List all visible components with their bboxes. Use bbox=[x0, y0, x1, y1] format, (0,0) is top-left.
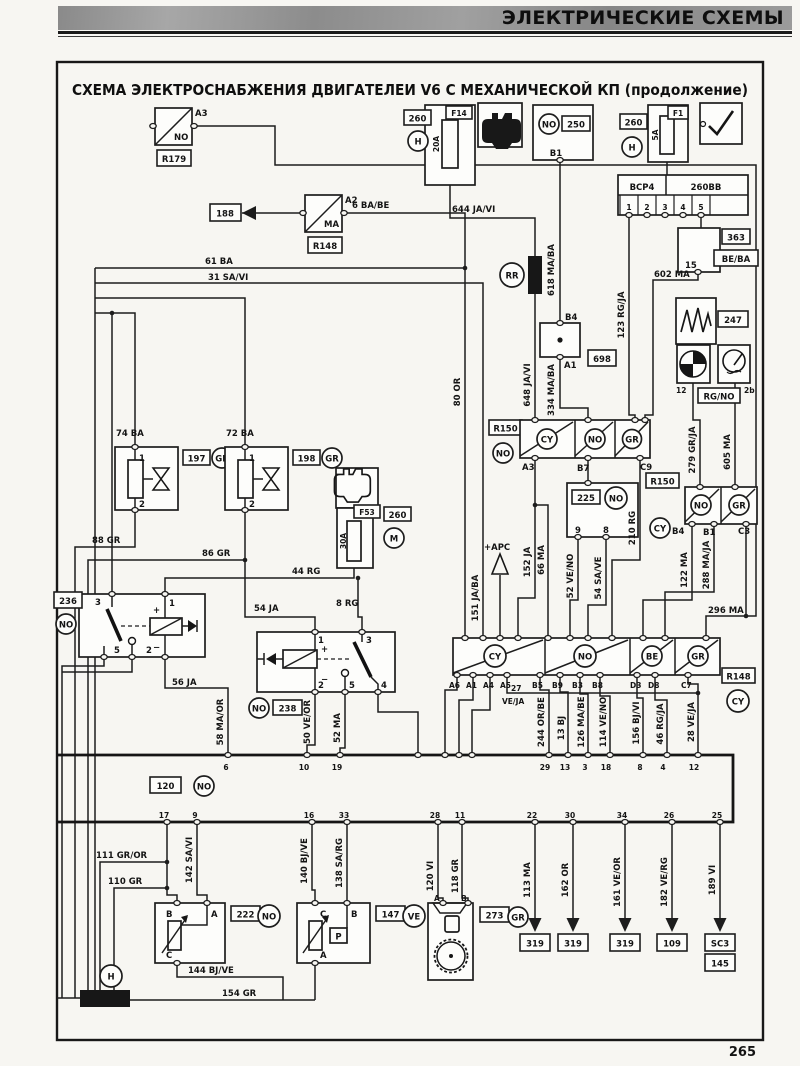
wire-label: 50 VE/OR bbox=[303, 700, 313, 745]
pin-label: 1 bbox=[139, 454, 145, 464]
wire-label: 605 MA bbox=[723, 434, 733, 470]
code-circle: VE bbox=[408, 913, 421, 923]
pin-label: D3 bbox=[630, 681, 641, 690]
pin-label: 34 bbox=[617, 811, 627, 820]
diagram-title: СХЕМА ЭЛЕКТРОСНАБЖЕНИЯ ДВИГАТЕЛЕИ V6 С М… bbox=[72, 80, 748, 99]
pin-label: + bbox=[321, 645, 328, 655]
dest-box: 319 bbox=[564, 940, 582, 950]
code-circle: NO bbox=[542, 121, 556, 131]
wire-label: 123 RG/JA bbox=[617, 291, 627, 338]
connector-r148-top: MA A2 R148 188 6 BA/BE bbox=[210, 195, 390, 253]
pin-label: 2b bbox=[744, 386, 755, 395]
pin-label: 17 bbox=[159, 811, 169, 820]
pin-label: 12 bbox=[689, 763, 699, 772]
ref-box-label: R150 bbox=[493, 425, 517, 435]
ref-box-label: 238 bbox=[279, 705, 297, 715]
wire-label: 86 GR bbox=[202, 549, 231, 559]
pin-label: 1 bbox=[626, 203, 631, 212]
ref-box-label: 197 bbox=[188, 455, 206, 465]
code-circle: H bbox=[107, 973, 114, 983]
sensor-273: A B 273 GR bbox=[428, 894, 528, 980]
wire-label: 154 GR bbox=[222, 989, 257, 999]
code-circle: NO bbox=[59, 621, 73, 631]
wire-label: 31 SA/VI bbox=[208, 273, 248, 283]
ref-box-label: R148 bbox=[313, 242, 337, 252]
relay-238: 1 + − 3 2 5 4 NO 238 bbox=[249, 632, 395, 718]
code-circle: CY bbox=[654, 525, 667, 535]
code-circle: NO bbox=[262, 913, 276, 923]
code-circle: CY bbox=[541, 436, 554, 446]
wire-label: 74 BA bbox=[116, 429, 144, 439]
wire-label: 6 BA/BE bbox=[352, 201, 390, 211]
pin-label: A5 bbox=[500, 681, 511, 690]
pin-label: A1 bbox=[466, 681, 477, 690]
pin-label: A1 bbox=[564, 361, 577, 371]
pin-label: 25 bbox=[712, 811, 722, 820]
wire-label: 52 VE/NO bbox=[566, 554, 576, 599]
engine-icon-small bbox=[334, 468, 378, 508]
wiring-diagram: СХЕМА ЭЛЕКТРОСНАБЖЕНИЯ ДВИГАТЕЛЕИ V6 С М… bbox=[0, 0, 800, 1066]
fuse-f14: F14 20A 260 H bbox=[404, 105, 475, 185]
wire-label: 152 JA bbox=[523, 546, 533, 577]
wire-label: 46 RG/JA bbox=[656, 703, 666, 745]
code-circle: NO bbox=[578, 653, 592, 663]
dest-box: 145 bbox=[711, 960, 729, 970]
resistor-rr: RR bbox=[500, 256, 542, 294]
wire-label: 151 JA/BA bbox=[471, 574, 481, 621]
code-circle: GR bbox=[691, 653, 705, 663]
ref-box-label: 247 bbox=[724, 316, 742, 326]
fuse-f53: F53 30A 260 M bbox=[337, 505, 411, 568]
pin-label: C7 bbox=[681, 681, 692, 690]
pin-bumps bbox=[101, 124, 749, 966]
pin-label: 3 bbox=[95, 598, 101, 608]
pin-label: A3 bbox=[522, 463, 535, 473]
fuse-name: F14 bbox=[451, 109, 467, 118]
connector-code: NO bbox=[174, 133, 188, 143]
code-circle: CY bbox=[732, 698, 745, 708]
pin-label: A bbox=[211, 910, 218, 920]
pin-label: 4 bbox=[381, 681, 387, 691]
wire-label: 648 JA/VI bbox=[523, 363, 533, 406]
wire-label: 120 VI bbox=[426, 861, 436, 891]
pin-label: A4 bbox=[483, 681, 494, 690]
pin-label: D8 bbox=[648, 681, 659, 690]
wire-label: 189 VI bbox=[708, 865, 718, 895]
wire-label: 56 JA bbox=[172, 678, 197, 688]
ref-box-label: 222 bbox=[237, 911, 255, 921]
wire-label: 88 GR bbox=[92, 536, 121, 546]
connector-code: MA bbox=[324, 220, 339, 230]
ref-box-label: 236 bbox=[59, 597, 77, 607]
pin-label: 4 bbox=[680, 203, 685, 212]
pin-label: 9 bbox=[192, 811, 197, 820]
injector-197: 1 2 197 GR bbox=[115, 447, 232, 510]
wire-label: 8 RG bbox=[336, 599, 358, 609]
component-15-363: 15 363 BE/BA bbox=[678, 228, 758, 272]
ref-box-label: 250 bbox=[567, 121, 585, 131]
code-circle: NO bbox=[588, 436, 602, 446]
wires-layer bbox=[57, 105, 756, 1000]
ref-box-label: 198 bbox=[298, 455, 316, 465]
component-698: B4 A1 698 bbox=[540, 313, 616, 371]
wire-label: 54 SA/VE bbox=[594, 556, 604, 599]
waveform-icon-247: 247 bbox=[676, 298, 748, 344]
wire-label: 61 BA bbox=[205, 257, 233, 267]
code-circle: CY bbox=[489, 653, 502, 663]
wire-label: 156 BJ/VI bbox=[632, 701, 642, 744]
pin-label: 26 bbox=[664, 811, 674, 820]
code-circle: NO bbox=[197, 783, 211, 793]
ref-box-label: 120 bbox=[157, 782, 175, 792]
dest-box: 319 bbox=[526, 940, 544, 950]
pin-label: 8 bbox=[637, 763, 642, 772]
pin-label: 16 bbox=[304, 811, 314, 820]
connector-250: NO 250 B1 bbox=[533, 105, 593, 160]
wire-label: 138 SA/RG bbox=[335, 838, 345, 888]
connector-r179: NO A3 R179 bbox=[155, 108, 208, 166]
code-circle: NO bbox=[609, 495, 623, 505]
wire-label: 126 MA/BE bbox=[577, 696, 587, 747]
pin-label: 33 bbox=[339, 811, 349, 820]
pin-label: C bbox=[166, 951, 172, 961]
pin-label: B7 bbox=[577, 464, 589, 474]
strip-name: BCP4 bbox=[630, 183, 655, 193]
pin-label: 5 bbox=[114, 646, 120, 656]
wire-label: 161 VE/OR bbox=[613, 857, 623, 907]
pin-label: 2 bbox=[249, 500, 255, 510]
wire-label: 113 MA bbox=[523, 862, 533, 898]
ref-box-label: RG/NO bbox=[704, 393, 735, 403]
wire-label: 140 BJ/VE bbox=[300, 838, 310, 884]
xcircle-icon bbox=[677, 345, 710, 383]
fuse-f1: F1 5A 260 H bbox=[620, 105, 688, 162]
pin-label: 5 bbox=[698, 203, 703, 212]
code-circle: H bbox=[628, 144, 635, 154]
strip-name: 260BB bbox=[691, 183, 722, 193]
ref-box-label: 225 bbox=[577, 494, 595, 504]
connector-right-nogr: CY NO GR B4 B1 C3 bbox=[650, 487, 757, 538]
engine-icon bbox=[478, 103, 522, 149]
pin-label: 19 bbox=[332, 763, 342, 772]
pin-label: 5 bbox=[349, 681, 355, 691]
wire-label: 118 GR bbox=[451, 858, 461, 893]
wire-label: 58 MA/OR bbox=[216, 698, 226, 745]
wire-label: 80 OR bbox=[453, 377, 463, 406]
pin-label: B8 bbox=[592, 681, 603, 690]
wire-label: 72 BA bbox=[226, 429, 254, 439]
wire-label: 279 GR/JA bbox=[688, 426, 698, 473]
ref-box-label: R148 bbox=[726, 673, 750, 683]
pin-label: 3 bbox=[366, 636, 372, 646]
wire-label: 296 MA bbox=[708, 606, 744, 616]
pin-label: 2 bbox=[146, 646, 152, 656]
code-circle: RR bbox=[505, 272, 519, 282]
pin-label: A bbox=[434, 894, 440, 903]
connector-r150: R150 NO CY NO GR A3 B7 C9 R150 bbox=[489, 420, 679, 488]
wire-label: 334 MA/BA bbox=[547, 364, 557, 416]
pin-label: 1 bbox=[249, 454, 255, 464]
wire-label: 288 MA/JA bbox=[702, 540, 712, 589]
wire-label: 602 MA bbox=[654, 270, 690, 280]
ref-box-label: 147 bbox=[382, 911, 400, 921]
pin-label: B bbox=[166, 910, 172, 920]
pin-label: − bbox=[153, 643, 160, 653]
wire-label: +APC bbox=[484, 543, 510, 553]
relay-236: 236 NO 3 1 + − 5 2 bbox=[54, 592, 205, 657]
left-arrow-icon bbox=[242, 206, 256, 220]
injector-198: 1 2 198 GR bbox=[225, 447, 342, 510]
wire-label: 54 JA bbox=[254, 604, 279, 614]
pin-label: B3 bbox=[572, 681, 583, 690]
ref-box-label: 260 bbox=[389, 511, 407, 521]
wire-label: 110 GR bbox=[108, 877, 143, 887]
wire-label: 644 JA/VI bbox=[452, 205, 495, 215]
pin-label: 11 bbox=[455, 811, 465, 820]
pin-label: 2 bbox=[139, 500, 145, 510]
pin-label: C bbox=[320, 910, 326, 920]
code-circle: GR bbox=[732, 502, 746, 512]
pressure-symbol: P bbox=[335, 933, 341, 943]
pin-label: 18 bbox=[601, 763, 611, 772]
wire-label: 66 MA bbox=[537, 545, 547, 575]
code-circle: NO bbox=[496, 450, 510, 460]
pin-label: C3 bbox=[738, 527, 750, 537]
sensor-222: B A C 222 NO bbox=[155, 903, 280, 963]
wire-label: 27 bbox=[511, 684, 521, 693]
pin-label: B4 bbox=[672, 527, 684, 537]
pin-label: 30 bbox=[565, 811, 575, 820]
pin-label: B4 bbox=[565, 313, 577, 323]
bus-pin-labels: 6 10 19 29 13 3 18 8 4 12 120 NO 17 9 16… bbox=[150, 763, 722, 820]
wire-label: 111 GR/OR bbox=[96, 851, 148, 861]
wire-label: 144 BJ/VE bbox=[188, 966, 234, 976]
pin-label: C9 bbox=[640, 463, 652, 473]
ref-box-label: 363 bbox=[727, 234, 745, 244]
dest-box: 109 bbox=[663, 940, 681, 950]
ref-box-label: R150 bbox=[650, 478, 674, 488]
code-circle: GR bbox=[511, 914, 525, 924]
pin-label: 2 bbox=[644, 203, 649, 212]
code-circle: GR bbox=[625, 436, 639, 446]
pin-label: A3 bbox=[195, 109, 208, 119]
pin-label: 3 bbox=[662, 203, 667, 212]
pin-label: 28 bbox=[430, 811, 440, 820]
pin-label: B1 bbox=[703, 528, 715, 538]
pin-label: 1 bbox=[169, 599, 175, 609]
code-circle: H bbox=[414, 138, 421, 148]
fuse-rating: 5A bbox=[651, 129, 660, 140]
code-circle: NO bbox=[252, 705, 266, 715]
code-circle: NO bbox=[694, 502, 708, 512]
pin-label: A6 bbox=[449, 681, 460, 690]
dest-box: SC3 bbox=[711, 940, 729, 950]
pin-label: B5 bbox=[532, 681, 543, 690]
fuse-rating: 20A bbox=[432, 136, 441, 152]
ref-box-label: 260 bbox=[409, 115, 427, 125]
dest-box: 319 bbox=[616, 940, 634, 950]
test-check-icon bbox=[700, 103, 742, 144]
rgno-label: 12 2b RG/NO bbox=[676, 386, 755, 403]
ref-box-label: 188 bbox=[216, 210, 234, 220]
code-circle: M bbox=[390, 535, 398, 545]
apc-arrow-icon: +APC bbox=[484, 543, 510, 574]
pin-label: 4 bbox=[660, 763, 665, 772]
scanned-manual-page: ЭЛЕКТРИЧЕСКИЕ СХЕМЫ 265 СХЕМА ЭЛЕКТРОСНА… bbox=[0, 0, 800, 1066]
pin-label: 12 bbox=[676, 386, 686, 395]
pin-label: A bbox=[320, 951, 327, 961]
wire-label: 52 MA bbox=[333, 713, 343, 743]
fuse-name: F53 bbox=[359, 508, 375, 517]
wire-label: 142 SA/VI bbox=[185, 837, 195, 883]
wire-label: 244 OR/BE bbox=[537, 697, 547, 747]
sensor-147: P C B A 147 VE bbox=[297, 903, 425, 963]
ref-box-label: 273 bbox=[486, 912, 504, 922]
pin-label: 22 bbox=[527, 811, 537, 820]
wire-label: VE/JA bbox=[502, 697, 524, 706]
ref-box-label: BE/BA bbox=[722, 255, 751, 265]
ref-box-label: R179 bbox=[162, 155, 186, 165]
pin-label: 13 bbox=[560, 763, 570, 772]
wire-label: 122 MA bbox=[680, 552, 690, 588]
gauge-icon bbox=[718, 345, 750, 383]
pin-label: 6 bbox=[223, 763, 228, 772]
ref-box-label: 260 bbox=[625, 119, 643, 129]
wire-label: 618 MA/BA bbox=[547, 244, 557, 296]
pin-label: B9 bbox=[552, 681, 563, 690]
wire-label: 44 RG bbox=[292, 567, 320, 577]
fuse-rating: 30A bbox=[339, 533, 348, 549]
wire-label: 182 VE/RG bbox=[660, 857, 670, 907]
ref-box-label: 698 bbox=[593, 355, 611, 365]
pin-label: 2 bbox=[318, 681, 324, 691]
code-circle: GR bbox=[325, 455, 339, 465]
fuse-name: F1 bbox=[673, 109, 683, 118]
wire-label: 13 BJ bbox=[557, 716, 567, 740]
connector-strip-bcp4: BCP4 260BB 1 2 3 4 5 bbox=[618, 175, 748, 215]
wire-label: 162 OR bbox=[561, 862, 571, 897]
wire-label: 28 VE/JA bbox=[687, 702, 697, 742]
wire-label: 114 VE/NO bbox=[599, 697, 609, 748]
wire-label: 210 RG bbox=[628, 511, 638, 545]
pin-label: B bbox=[351, 910, 357, 920]
pin-label: 29 bbox=[540, 763, 550, 772]
pin-label: + bbox=[153, 606, 160, 616]
output-arrows: 319 319 319 109 SC3 145 bbox=[520, 918, 735, 971]
pin-label: 10 bbox=[299, 763, 309, 772]
pin-label: 3 bbox=[582, 763, 587, 772]
code-circle: BE bbox=[646, 653, 658, 663]
